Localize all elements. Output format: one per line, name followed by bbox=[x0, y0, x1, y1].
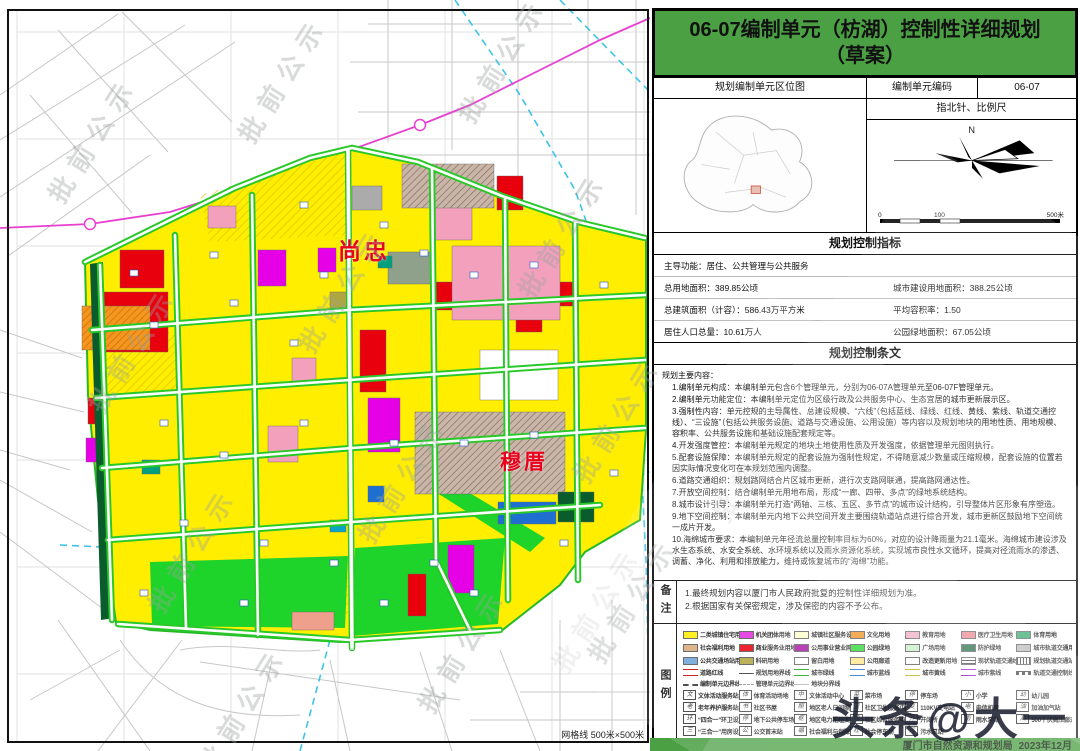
legend-item: 城市轨道交通用地 bbox=[1016, 643, 1072, 652]
legend-swatch bbox=[683, 644, 698, 652]
legend-item: 公用廊道 bbox=[850, 656, 906, 665]
provision-item: 8.城市设计引导：本编制单元打造“两轴、三核、五区、多节点”的城市设计结构，引导… bbox=[662, 499, 1068, 510]
village-label-shangzhong: 尚忠 bbox=[338, 232, 390, 266]
facility-icon: 体 bbox=[739, 690, 752, 700]
legend-item-label: 公用事业营业网点用地 bbox=[811, 643, 850, 652]
info-panel: 06-07编制单元（枋湖）控制性详细规划 （草案） 规划编制单元区位图 编制单元… bbox=[650, 0, 1080, 751]
plan-title-line1: 06-07编制单元（枋湖）控制性详细规划 bbox=[689, 17, 1040, 43]
zoning-map: 尚忠 穆厝 网格线 500米×500米 bbox=[0, 0, 650, 751]
legend-item: 幼幼儿园 bbox=[1016, 690, 1072, 700]
facility-icon: 中 bbox=[794, 690, 807, 700]
legend-item-label: 城市轨道交通用地 bbox=[1033, 643, 1072, 652]
legend-item: 广场用地 bbox=[905, 643, 961, 652]
legend-item-label: 公园绿地 bbox=[867, 643, 890, 652]
legend-item: 编制单元边界线 bbox=[683, 679, 739, 688]
legend-item-label: 科研用地 bbox=[756, 656, 779, 665]
facility-icon: 开 bbox=[905, 714, 918, 724]
legend-swatch bbox=[794, 644, 809, 652]
facility-icon: 停 bbox=[905, 690, 918, 700]
legend-item: 福社会福利与保障设施 bbox=[794, 726, 850, 736]
legend-item: 机关团体用地 bbox=[739, 630, 795, 639]
legend-item-label: 防护绿地 bbox=[978, 643, 1001, 652]
zoning-map-canvas bbox=[0, 0, 650, 751]
legend-item-label: 雨水泵站 bbox=[976, 715, 999, 724]
legend-item: 高500千伏高压廊道 bbox=[1016, 714, 1072, 724]
legend-item-label: 体育用地 bbox=[1033, 630, 1056, 639]
provision-item: 9.地下空间控制：本编制单元内地下公共空间开发主要围绕轨道站点进行综合开发，城市… bbox=[662, 511, 1068, 533]
legend-item-label: 开闭所 bbox=[920, 715, 937, 724]
legend-item-label: 现状轨道交通线 bbox=[978, 656, 1017, 665]
legend-item: 轨道交通控制线 bbox=[1016, 668, 1072, 677]
legend-item: 公公交首末站 bbox=[739, 726, 795, 736]
legend-swatch bbox=[905, 644, 920, 652]
legend-line-symbol bbox=[1016, 671, 1031, 675]
legend-swatch-row: 公共交通场站用地 科研用地 留白用地 公用廊道 改造更新用地 现状轨道交通线 bbox=[683, 654, 1072, 667]
compass-body: N 0 100 500米 bbox=[867, 120, 1076, 232]
legend-item: 科研用地 bbox=[739, 656, 795, 665]
facility-icon: 高 bbox=[1016, 714, 1029, 724]
facility-icon: 小 bbox=[961, 690, 974, 700]
legend-item: 社社会停车场 bbox=[850, 726, 906, 736]
scale-bar: 0 100 500米 bbox=[872, 210, 1072, 228]
legend-swatch bbox=[794, 631, 809, 639]
legend-line-symbol bbox=[683, 669, 698, 676]
note-line: 1.最终规划内容以厦门市人民政府批复的控制性详细规划为准。 bbox=[685, 587, 1068, 600]
legend-item-label: 社会福利与保障设施 bbox=[809, 727, 850, 736]
rail-station-marker bbox=[415, 120, 426, 131]
legend-item-label: 污水泵站 bbox=[920, 727, 943, 736]
legend-item: 公共交通场站用地 bbox=[683, 656, 739, 665]
north-arrow: N bbox=[872, 122, 1072, 188]
notes-content: 1.最终规划内容以厦门市人民政府批复的控制性详细规划为准。 2.根据国家有关保密… bbox=[677, 581, 1076, 623]
legend-item-label: 城市绿线 bbox=[811, 668, 834, 677]
legend-item: 现状轨道交通线 bbox=[961, 656, 1017, 665]
legend-item-label: 体育活动场地 bbox=[754, 691, 789, 700]
legend-swatch bbox=[961, 631, 976, 639]
legend-item-label: 文体活动中心 bbox=[809, 691, 844, 700]
village-label-mucuo: 穆厝 bbox=[500, 446, 548, 476]
legend-icon-row: 环“四合一”环卫设施 停地下公共停车场 枢地区电力枢纽变电站 综社区综合服务中心… bbox=[683, 713, 1072, 725]
grid-scale-note: 网格线 500米×500米 bbox=[561, 728, 644, 741]
legend-item: 教育用地 bbox=[905, 630, 961, 639]
legend-item: 中文体活动中心 bbox=[794, 690, 850, 700]
legend-item-label: 规划用地界线 bbox=[756, 668, 791, 677]
compass-title: 指北针、比例尺 bbox=[867, 99, 1076, 120]
legend-swatch bbox=[850, 657, 865, 665]
legend-line-row: 道路红线 规划用地界线 城市绿线 城市蓝线 城市黄线 城市紫线 轨道交通控制 bbox=[683, 667, 1072, 678]
legend-item: 三“三合一”用房设施 bbox=[683, 726, 739, 736]
legend-item: 规划用地界线 bbox=[739, 668, 795, 677]
legend-item-label: 编制单元边界线 bbox=[700, 679, 739, 688]
provision-item: 5.配套设施保障：本编制单元规定的配套设施为强制性规定，不得随意减少数量或压缩规… bbox=[662, 452, 1068, 474]
legend-line-symbol bbox=[794, 684, 809, 685]
legend-item: 油加油加气站 bbox=[1016, 702, 1072, 712]
park-parcel bbox=[352, 538, 505, 636]
legend-item: 卫社区卫生服务中心 bbox=[850, 702, 906, 712]
facility-icon: 照 bbox=[794, 702, 807, 712]
legend-line-symbol bbox=[850, 669, 865, 676]
legend-item-label: 道路红线 bbox=[700, 668, 723, 677]
legend-item: 环“四合一”环卫设施 bbox=[683, 714, 739, 724]
legend-swatch bbox=[961, 657, 976, 665]
planning-announcement-sheet: 尚忠 穆厝 网格线 500米×500米 06-07编制单元（枋湖）控制性详细规划… bbox=[0, 0, 1080, 751]
facility-icon: 卫 bbox=[850, 702, 863, 712]
legend-line-row: 编制单元边界线 管理单元边界线 地块分界线 bbox=[683, 678, 1072, 689]
indicator-row: 主导功能：居住、公共管理与公共服务 bbox=[654, 255, 1076, 276]
legend-grid: 二类城镇住宅用地 机关团体用地 城镇社区服务设施用地 文化用地 教育用地 医疗卫… bbox=[677, 624, 1076, 750]
legend-line-symbol bbox=[961, 669, 976, 676]
legend-item: 停地下公共停车场 bbox=[739, 714, 795, 724]
legend-line-symbol bbox=[794, 669, 809, 676]
plan-title-line2: （草案） bbox=[825, 43, 905, 69]
legend-item: 管理单元边界线 bbox=[739, 679, 795, 688]
legend-item: 小小学 bbox=[961, 690, 1017, 700]
indicator-row: 总用地面积：389.85公顷 城市建设用地面积：388.25公顷 bbox=[654, 276, 1076, 298]
total-land-area: 总用地面积：389.85公顷 bbox=[664, 282, 893, 294]
legend-item: 地块分界线 bbox=[794, 679, 850, 688]
legend-swatch-row: 二类城镇住宅用地 机关团体用地 城镇社区服务设施用地 文化用地 教育用地 医疗卫… bbox=[683, 628, 1072, 641]
provisions-section-title: 规划控制条文 bbox=[654, 343, 1076, 365]
legend-item: 菜菜市场 bbox=[850, 690, 906, 700]
legend-item: 公园绿地 bbox=[850, 643, 906, 652]
svg-text:500米: 500米 bbox=[1046, 210, 1064, 219]
legend-swatch bbox=[794, 657, 809, 665]
rail-station-marker bbox=[85, 219, 96, 230]
legend-item-label: “四合一”环卫设施 bbox=[698, 715, 739, 724]
unit-code-value: 06-07 bbox=[978, 78, 1076, 98]
legend-item-label: 社区书屋 bbox=[754, 703, 777, 712]
north-letter: N bbox=[968, 125, 975, 135]
legend-item: 医疗卫生用地 bbox=[961, 630, 1017, 639]
legend-label: 图例 bbox=[657, 669, 673, 705]
legend-swatch bbox=[1016, 644, 1031, 652]
legend-item-label: 公用廊道 bbox=[867, 656, 890, 665]
average-far: 平均容积率：1.50 bbox=[893, 304, 1066, 316]
legend-item-label: 规划轨道交通站点 bbox=[1033, 656, 1072, 665]
facility-icon: 雨 bbox=[961, 714, 974, 724]
legend-item-label: 城市蓝线 bbox=[867, 668, 890, 677]
floor-area: 总建筑面积（计容）：586.43万平方米 bbox=[664, 304, 893, 316]
lead-function: 主导功能：居住、公共管理与公共服务 bbox=[664, 260, 893, 272]
unit-code-label: 编制单元编码 bbox=[867, 78, 978, 98]
legend-item: 二类城镇住宅用地 bbox=[683, 630, 739, 639]
facility-icon: 书 bbox=[739, 702, 752, 712]
legend-swatch bbox=[905, 657, 920, 665]
legend-item-label: 城市紫线 bbox=[978, 668, 1001, 677]
facility-icon: 福 bbox=[794, 726, 807, 736]
legend-item: 改造更新用地 bbox=[905, 656, 961, 665]
park-green-area: 公园绿地面积：67.05公顷 bbox=[893, 326, 1066, 338]
facility-icon: 社 bbox=[850, 726, 863, 736]
footer-bar: 厦门市自然资源和规划局 2023年12月 bbox=[650, 738, 1080, 751]
location-map-title: 规划编制单元区位图 bbox=[654, 78, 867, 98]
legend-swatch bbox=[905, 631, 920, 639]
legend-item: 社会福利用地 bbox=[683, 643, 739, 652]
legend-item: 城市黄线 bbox=[905, 668, 961, 677]
legend-item: 综社区综合服务中心 bbox=[850, 714, 906, 724]
legend-item-label: 老年养护服务站 bbox=[698, 703, 739, 712]
provision-item: 1.编制单元构成：本编制单元包含6个管理单元，分别为06-07A管理单元至06-… bbox=[662, 382, 1068, 393]
legend-item-label: 城镇社区服务设施用地 bbox=[811, 630, 850, 639]
agency-name: 厦门市自然资源和规划局 bbox=[903, 737, 1013, 751]
legend-item: 道路红线 bbox=[683, 668, 739, 677]
legend-swatch bbox=[739, 644, 754, 652]
legend-item: 照地区老人日间照料中心 bbox=[794, 702, 850, 712]
provision-item: 4.开发强度管控：本编制单元规定的地块土地使用性质及开发强度，依据管理单元图则执… bbox=[662, 440, 1068, 451]
facility-icon: 文 bbox=[683, 690, 696, 700]
resident-population: 居住人口总量：10.61万人 bbox=[664, 326, 893, 338]
legend-item: 城市蓝线 bbox=[850, 668, 906, 677]
legend-item-label: 加油加气站 bbox=[1031, 703, 1060, 712]
legend-item-label: 城市黄线 bbox=[922, 668, 945, 677]
legend-item-label: 500千伏高压廊道 bbox=[1031, 715, 1072, 724]
indicators-block: 主导功能：居住、公共管理与公共服务 总用地面积：389.85公顷 城市建设用地面… bbox=[654, 255, 1076, 343]
legend-item-label: 广场用地 bbox=[922, 643, 945, 652]
publish-date: 2023年12月 bbox=[1019, 737, 1072, 751]
legend-item: 体育用地 bbox=[1016, 630, 1072, 639]
facility-icon: 污 bbox=[905, 726, 918, 736]
legend-item: 雨雨水泵站 bbox=[961, 714, 1017, 724]
legend-item-label: “三合一”用房设施 bbox=[698, 727, 739, 736]
legend-item: 开开闭所 bbox=[905, 714, 961, 724]
legend-item: 老老年养护服务站 bbox=[683, 702, 739, 712]
legend-label-cell: 图例 bbox=[654, 624, 677, 750]
legend-icon-row: 文文体活动服务站 体体育活动场地 中文体活动中心 菜菜市场 停停车场 小小学 bbox=[683, 689, 1072, 701]
facility-icon: 变 bbox=[905, 702, 918, 712]
legend-item-label: 文体活动服务站 bbox=[698, 691, 739, 700]
title-bar: 06-07编制单元（枋湖）控制性详细规划 （草案） bbox=[652, 8, 1078, 78]
provision-item: 3.强制性内容：单元控规的主导属性、总建设规模、“六线”（包括蓝线、绿线、红线、… bbox=[662, 406, 1068, 439]
legend-swatch bbox=[683, 657, 698, 665]
legend-swatch bbox=[850, 644, 865, 652]
panel-table: 规划编制单元区位图 编制单元编码 06-07 指北针、比例尺 bbox=[652, 78, 1078, 751]
legend-icon-row: 老老年养护服务站 书社区书屋 照地区老人日间照料中心 卫社区卫生服务中心 变11… bbox=[683, 701, 1072, 713]
legend-swatch bbox=[739, 631, 754, 639]
legend-item-label: 幼儿园 bbox=[1031, 691, 1048, 700]
legend-item: 规划轨道交通站点 bbox=[1016, 656, 1072, 665]
legend-item-label: 地区电力枢纽变电站 bbox=[809, 715, 850, 724]
notes-label: 备注 bbox=[657, 584, 673, 620]
legend-row: 图例 二类城镇住宅用地 机关团体用地 城镇社区服务设施用地 文化用地 教 bbox=[654, 624, 1076, 750]
legend-line-symbol bbox=[683, 684, 698, 686]
legend-swatch bbox=[850, 631, 865, 639]
legend-item-label: 医疗卫生用地 bbox=[978, 630, 1013, 639]
notes-label-cell: 备注 bbox=[654, 581, 677, 623]
note-line: 2.根据国家有关保密规定，涉及保密的内容不予公布。 bbox=[685, 600, 1068, 613]
urban-land-area: 城市建设用地面积：388.25公顷 bbox=[893, 282, 1066, 294]
legend-item-label: 公共交通场站用地 bbox=[700, 656, 739, 665]
legend-swatch bbox=[683, 631, 698, 639]
legend-item: 留白用地 bbox=[794, 656, 850, 665]
legend-item: 体体育活动场地 bbox=[739, 690, 795, 700]
facility-icon: 枢 bbox=[794, 714, 807, 724]
legend-item: 城市绿线 bbox=[794, 668, 850, 677]
legend-item: 防护绿地 bbox=[961, 643, 1017, 652]
facility-icon: 三 bbox=[683, 726, 696, 736]
legend-swatch-row: 社会福利用地 商业服务业用地 公用事业营业网点用地 公园绿地 广场用地 防护绿地 bbox=[683, 641, 1072, 654]
legend-item-label: 文化用地 bbox=[867, 630, 890, 639]
location-map-drawing bbox=[660, 103, 860, 228]
provision-item: 2.编制单元功能定位：本编制单元定位为区级行政及公共服务中心、生态宜居的城市更新… bbox=[662, 394, 1068, 405]
legend-item-label: 社会福利用地 bbox=[700, 643, 735, 652]
indicator-row: 居住人口总量：10.61万人 公园绿地面积：67.05公顷 bbox=[654, 320, 1076, 342]
legend-icon-row: 三“三合一”用房设施 公公交首末站 福社会福利与保障设施 社社会停车场 污污水泵… bbox=[683, 725, 1072, 737]
provision-item: 6.道路交通组织：规划路网结合片区城市更新，进行次支路网联通，提高路网通达性。 bbox=[662, 475, 1068, 486]
legend-item: 枢地区电力枢纽变电站 bbox=[794, 714, 850, 724]
planning-area bbox=[82, 148, 646, 648]
indicators-section-title: 规划控制指标 bbox=[654, 233, 1076, 255]
legend-item: 污污水泵站 bbox=[905, 726, 961, 736]
legend-item: 城市紫线 bbox=[961, 668, 1017, 677]
legend-item-label: 教育用地 bbox=[922, 630, 945, 639]
legend-item-label: 公交首末站 bbox=[754, 727, 783, 736]
legend-item-label: 停车场 bbox=[920, 691, 937, 700]
indicator-row: 总建筑面积（计容）：586.43万平方米 平均容积率：1.50 bbox=[654, 298, 1076, 320]
notes-row: 备注 1.最终规划内容以厦门市人民政府批复的控制性详细规划为准。 2.根据国家有… bbox=[654, 581, 1076, 624]
legend-item-label: 轨道交通控制线 bbox=[1033, 668, 1072, 677]
facility-icon: 环 bbox=[683, 714, 696, 724]
svg-text:100: 100 bbox=[934, 212, 945, 219]
legend-item: 文文体活动服务站 bbox=[683, 690, 739, 700]
legend-item-label: 管理单元边界线 bbox=[756, 679, 795, 688]
legend-item-label: 地块分界线 bbox=[811, 679, 840, 688]
legend-item-label: 留白用地 bbox=[811, 656, 834, 665]
unit-highlight bbox=[751, 186, 760, 193]
legend-item: 城镇社区服务设施用地 bbox=[794, 630, 850, 639]
facility-icon: 电 bbox=[961, 702, 974, 712]
facility-icon: 综 bbox=[850, 714, 863, 724]
provision-item: 7.开放空间控制：结合编制单元用地布局，形成“一廊、四带、多点”的绿地系统结构。 bbox=[662, 487, 1068, 498]
legend-item-label: 110KV变电站 bbox=[920, 703, 954, 712]
legend-item: 电电信机房 bbox=[961, 702, 1017, 712]
legend-item: 书社区书屋 bbox=[739, 702, 795, 712]
legend-item-label: 社会停车场 bbox=[865, 727, 894, 736]
legend-item-label: 社区综合服务中心 bbox=[865, 715, 906, 724]
legend-swatch bbox=[1016, 631, 1031, 639]
legend-item-label: 社区卫生服务中心 bbox=[865, 703, 906, 712]
legend-item-label: 地区老人日间照料中心 bbox=[809, 703, 850, 712]
header-row: 规划编制单元区位图 编制单元编码 06-07 bbox=[654, 78, 1076, 99]
legend-line-symbol bbox=[739, 684, 754, 685]
location-compass-row: 指北针、比例尺 N 0 bbox=[654, 99, 1076, 233]
provisions-text: 规划主要内容： 1.编制单元构成：本编制单元包含6个管理单元，分别为06-07A… bbox=[654, 365, 1076, 581]
legend-item-label: 二类城镇住宅用地 bbox=[700, 630, 739, 639]
compass-cell: 指北针、比例尺 N 0 bbox=[867, 99, 1076, 232]
provisions-intro: 规划主要内容： bbox=[662, 370, 1068, 381]
legend-item: 停停车场 bbox=[905, 690, 961, 700]
legend-item-label: 改造更新用地 bbox=[922, 656, 957, 665]
facility-icon: 菜 bbox=[850, 690, 863, 700]
facility-icon: 幼 bbox=[1016, 690, 1029, 700]
legend-item-label: 菜市场 bbox=[865, 691, 882, 700]
facility-icon: 公 bbox=[739, 726, 752, 736]
legend-item: 文化用地 bbox=[850, 630, 906, 639]
facility-icon: 停 bbox=[739, 714, 752, 724]
legend-item: 变110KV变电站 bbox=[905, 702, 961, 712]
legend-item-label: 商业服务业用地 bbox=[756, 643, 795, 652]
legend-item-label: 电信机房 bbox=[976, 703, 999, 712]
svg-text:0: 0 bbox=[878, 212, 882, 219]
legend-swatch bbox=[739, 657, 754, 665]
location-map bbox=[654, 99, 867, 232]
legend-swatch bbox=[1016, 657, 1031, 665]
legend-item-label: 机关团体用地 bbox=[756, 630, 791, 639]
provision-item: 10.海绵城市要求：本编制单元年径流总量控制率目标为60%，对应的设计降雨量为2… bbox=[662, 534, 1068, 567]
legend-swatch bbox=[961, 644, 976, 652]
legend-item: 商业服务业用地 bbox=[739, 643, 795, 652]
facility-icon: 油 bbox=[1016, 702, 1029, 712]
facility-icon: 老 bbox=[683, 702, 696, 712]
legend-item-label: 小学 bbox=[976, 691, 988, 700]
legend-line-symbol bbox=[905, 669, 920, 676]
legend-item: 公用事业营业网点用地 bbox=[794, 643, 850, 652]
legend-item-label: 地下公共停车场 bbox=[754, 715, 795, 724]
legend-line-symbol bbox=[739, 673, 754, 674]
